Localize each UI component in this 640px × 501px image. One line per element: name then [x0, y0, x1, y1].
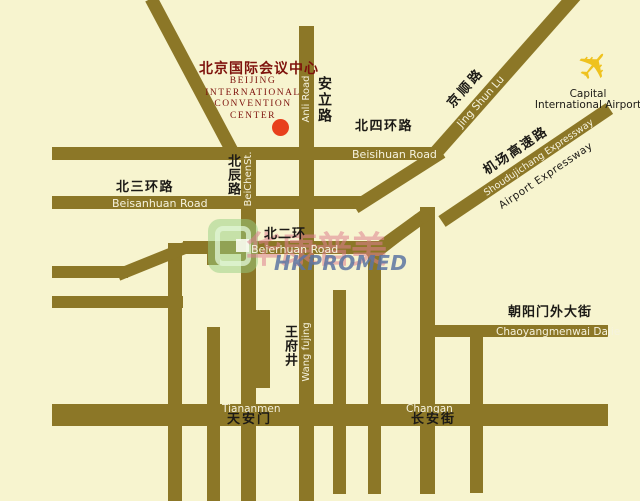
airport-label-line2: International Airport [508, 100, 640, 111]
beisihuan-label-en: Beisihuan Road [352, 149, 437, 160]
anli-road-label-cn: 安立路 [317, 76, 331, 124]
road-wide-block [241, 310, 270, 388]
beierhuan-label-cn: 北二环 [264, 228, 306, 241]
beisanhuan-label-cn: 北三环路 [116, 181, 174, 194]
changan-label-cn: 长安街 [411, 413, 456, 426]
beichen-label-cn: 北辰路 [226, 154, 239, 196]
airplane-icon: ✈ [569, 40, 621, 91]
anli-road-label-en: Anli Road [302, 75, 312, 122]
road-vertical-f [470, 325, 483, 493]
beichen-label-en: BeiChenSt. [244, 151, 254, 206]
tiananmen-label-cn: 天安门 [227, 413, 272, 426]
chaoyangmenwai-label-cn: 朝阳门外大街 [508, 306, 592, 319]
road-vertical-e [333, 290, 346, 494]
road-changan [52, 404, 608, 426]
beisihuan-label-cn: 北四环路 [355, 120, 413, 133]
convention-center-marker [272, 119, 289, 136]
road-vertical-a [168, 243, 182, 501]
road-vertical-d [368, 253, 381, 494]
road-vertical-b [207, 327, 220, 501]
beierhuan-label-en: Beierhuan Road [251, 244, 338, 255]
airport-label: Capital International Airport [508, 89, 640, 111]
wangfujing-label-en: Wang fujing [302, 322, 312, 381]
wangfujing-label-cn: 王府井 [283, 325, 296, 367]
road-stub-lower-left [52, 296, 183, 308]
beisanhuan-label-en: Beisanhuan Road [112, 198, 208, 209]
road-main-vertical [420, 207, 435, 494]
beijing-location-map: 华康普美 HKPROMED 北京国际会议中心 BEIJING INTERNATI… [0, 0, 640, 501]
chaoyangmenwai-label-en: Chaoyangmenwai Dajie [496, 327, 620, 338]
